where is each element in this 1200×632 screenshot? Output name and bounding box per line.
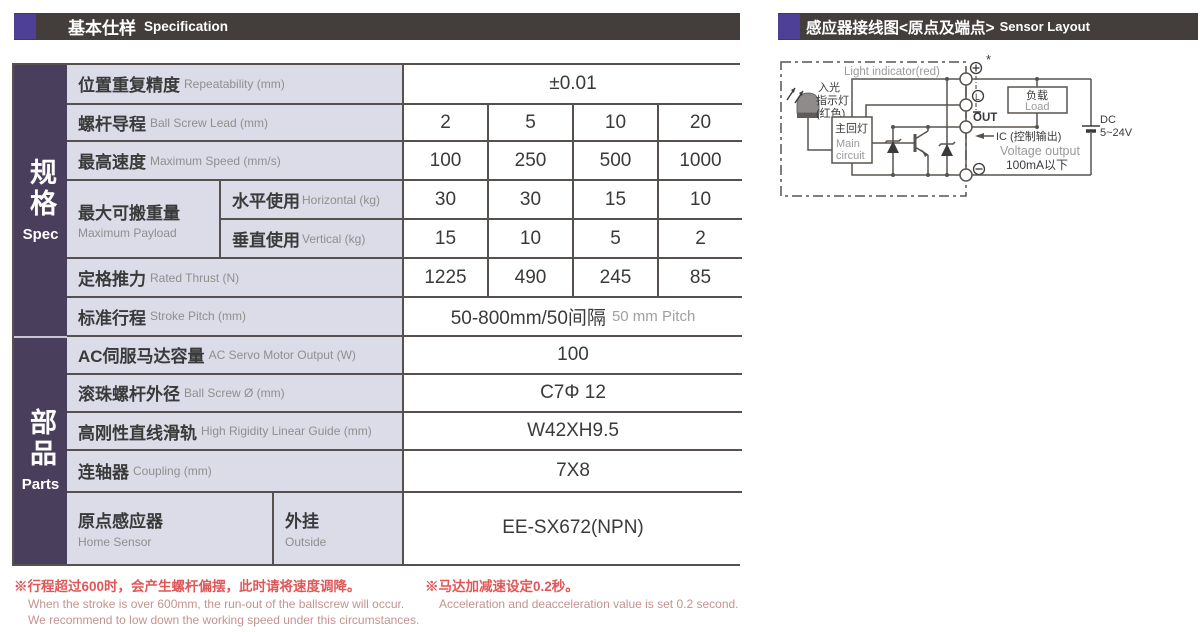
load-en: Load [1025,101,1049,113]
value-cell: EE-SX672(NPN) [402,493,742,564]
dc-label: DC [1100,114,1116,126]
zener-diode-icon [885,139,901,153]
ic-label: IC (控制输出) [996,129,1061,143]
row-label: 标准行程 Stroke Pitch (mm) [67,298,402,335]
table-sidebar: 规格 Spec 部品 Parts [14,65,67,564]
value-cell: 500 [572,142,657,179]
dc-range-label: 5~24V [1100,127,1133,139]
value-cell: 1000 [657,142,742,179]
row-max-payload: 最大可搬重量 Maximum Payload 水平使用 Horizontal (… [67,179,742,257]
value-cell: 10 [657,181,742,218]
value-cell: ±0.01 [402,65,742,103]
spec-title-en: Specification [144,19,228,34]
value-cell: 20 [657,105,742,141]
row-ball-screw-dia: 滚珠螺杆外径 Ball Screw Ø (mm) C7Φ 12 [67,373,742,412]
value-cell: 10 [487,220,572,257]
current-limit-label: 100mA以下 [1006,158,1068,172]
ic-arrow-icon [975,133,994,139]
value-cell: 5 [487,105,572,141]
value-cell: 100 [402,337,742,373]
row-label: 原点感应器 Home Sensor [67,493,272,564]
main-circuit-zh: 主回灯 [835,122,868,135]
sensor-section-header: 感应器接线图<原点及端点> Sensor Layout [778,13,1198,40]
sensor-title-zh: 感应器接线图<原点及端点> [806,16,995,38]
value-cell: C7Φ 12 [402,375,742,412]
row-rated-thrust: 定格推力 Rated Thrust (N) 1225 490 245 85 [67,257,742,296]
value-cell: 2 [657,220,742,257]
main-circuit-en1: Main [836,138,860,150]
out-label: OUT [973,112,997,124]
row-label: 位置重复精度 Repeatability (mm) [67,65,402,103]
value-cell: 50-800mm/50间隔 50 mm Pitch [402,298,742,335]
value-cell: 30 [402,181,487,218]
value-cell: 2 [402,105,487,141]
value-cell: 5 [572,220,657,257]
subrow-vertical: 垂直使用 Vertical (kg) 15 10 5 2 [219,218,742,257]
spec-section-header: 基本仕样 Specification [14,13,740,40]
sidebar-group-spec: 规格 Spec [14,65,67,336]
header-accent-square [778,14,800,39]
subrow-horizontal: 水平使用 Horizontal (kg) 30 30 15 10 [219,181,742,218]
value-cell: 490 [487,259,572,296]
light-zh-line1: 入光 [818,80,840,94]
sidebar-spec-en: Spec [23,226,59,243]
asterisk-mark: * [986,52,991,67]
light-terminal-icon: L [973,76,984,112]
row-label: 最高速度 Maximum Speed (mm/s) [67,142,402,179]
sensor-wiring-diagram: Light indicator(red) 入光 指示灯 (红色) 主回灯 Mai… [778,48,1198,208]
subrow-label: 垂直使用 Vertical (kg) [219,220,402,257]
sidebar-parts-zh: 部品 [27,408,54,470]
light-indicator-label: Light indicator(red) [844,66,940,78]
row-label: 连轴器 Coupling (mm) [67,451,402,491]
row-ball-screw-lead: 螺杆导程 Ball Screw Lead (mm) 2 5 10 20 [67,103,742,141]
row-label: 最大可搬重量 Maximum Payload [67,181,219,257]
row-stroke-pitch: 标准行程 Stroke Pitch (mm) 50-800mm/50间隔 50 … [67,296,742,335]
spec-table: 规格 Spec 部品 Parts 位置重复精度 Repeatability (m… [12,63,740,566]
value-cell: W42XH9.5 [402,413,742,449]
voltage-output-label: Voltage output [1000,144,1080,158]
value-cell: 250 [487,142,572,179]
row-label: 螺杆导程 Ball Screw Lead (mm) [67,105,402,141]
value-cell: 10 [572,105,657,141]
row-repeatability: 位置重复精度 Repeatability (mm) ±0.01 [67,65,742,103]
row-label: 高刚性直线滑轨 High Rigidity Linear Guide (mm) [67,413,402,449]
sidebar-parts-en: Parts [22,476,60,493]
main-circuit-en2: circuit [836,150,865,162]
footnote-stroke-warning: ※行程超过600时，会产生螺杆偏摆，此时请将速度调降。 When the str… [14,575,419,627]
header-accent-square [14,14,36,39]
svg-text:L: L [975,92,980,102]
row-linear-guide: 高刚性直线滑轨 High Rigidity Linear Guide (mm) … [67,411,742,449]
load-zh: 负载 [1026,88,1048,102]
subrow-label-outside: 外挂 Outside [272,493,402,564]
battery-icon [1082,126,1100,131]
value-cell: 245 [572,259,657,296]
value-cell: 1225 [402,259,487,296]
sidebar-spec-zh: 规格 [27,158,54,220]
row-label: AC伺服马达容量 AC Servo Motor Output (W) [67,337,402,373]
value-cell: 100 [402,142,487,179]
value-cell: 85 [657,259,742,296]
row-label: 滚珠螺杆外径 Ball Screw Ø (mm) [67,375,402,412]
sidebar-group-parts: 部品 Parts [14,336,67,564]
row-coupling: 连轴器 Coupling (mm) 7X8 [67,449,742,491]
footnote-acceleration: ※马达加减速设定0.2秒。 Acceleration and deacceler… [425,575,739,611]
value-cell: 15 [402,220,487,257]
sensor-title-en: Sensor Layout [1000,19,1090,34]
row-label: 定格推力 Rated Thrust (N) [67,259,402,296]
row-max-speed: 最高速度 Maximum Speed (mm/s) 100 250 500 10… [67,140,742,179]
value-cell: 30 [487,181,572,218]
minus-terminal-icon [974,164,985,175]
table-body: 位置重复精度 Repeatability (mm) ±0.01 螺杆导程 Bal… [67,65,742,564]
value-cell: 15 [572,181,657,218]
light-zh-line2: 指示灯 [816,93,849,107]
row-home-sensor: 原点感应器 Home Sensor 外挂 Outside EE-SX672(NP… [67,491,742,564]
spec-sheet-page: 基本仕样 Specification 感应器接线图<原点及端点> Sensor … [0,0,1200,632]
spec-title-zh: 基本仕样 [68,14,136,39]
plus-terminal-icon [971,63,982,74]
row-servo-output: AC伺服马达容量 AC Servo Motor Output (W) 100 [67,335,742,373]
zener-diode-icon [939,142,955,156]
transistor-icon [915,127,928,175]
value-cell: 7X8 [402,451,742,491]
subrow-label: 水平使用 Horizontal (kg) [219,181,402,218]
